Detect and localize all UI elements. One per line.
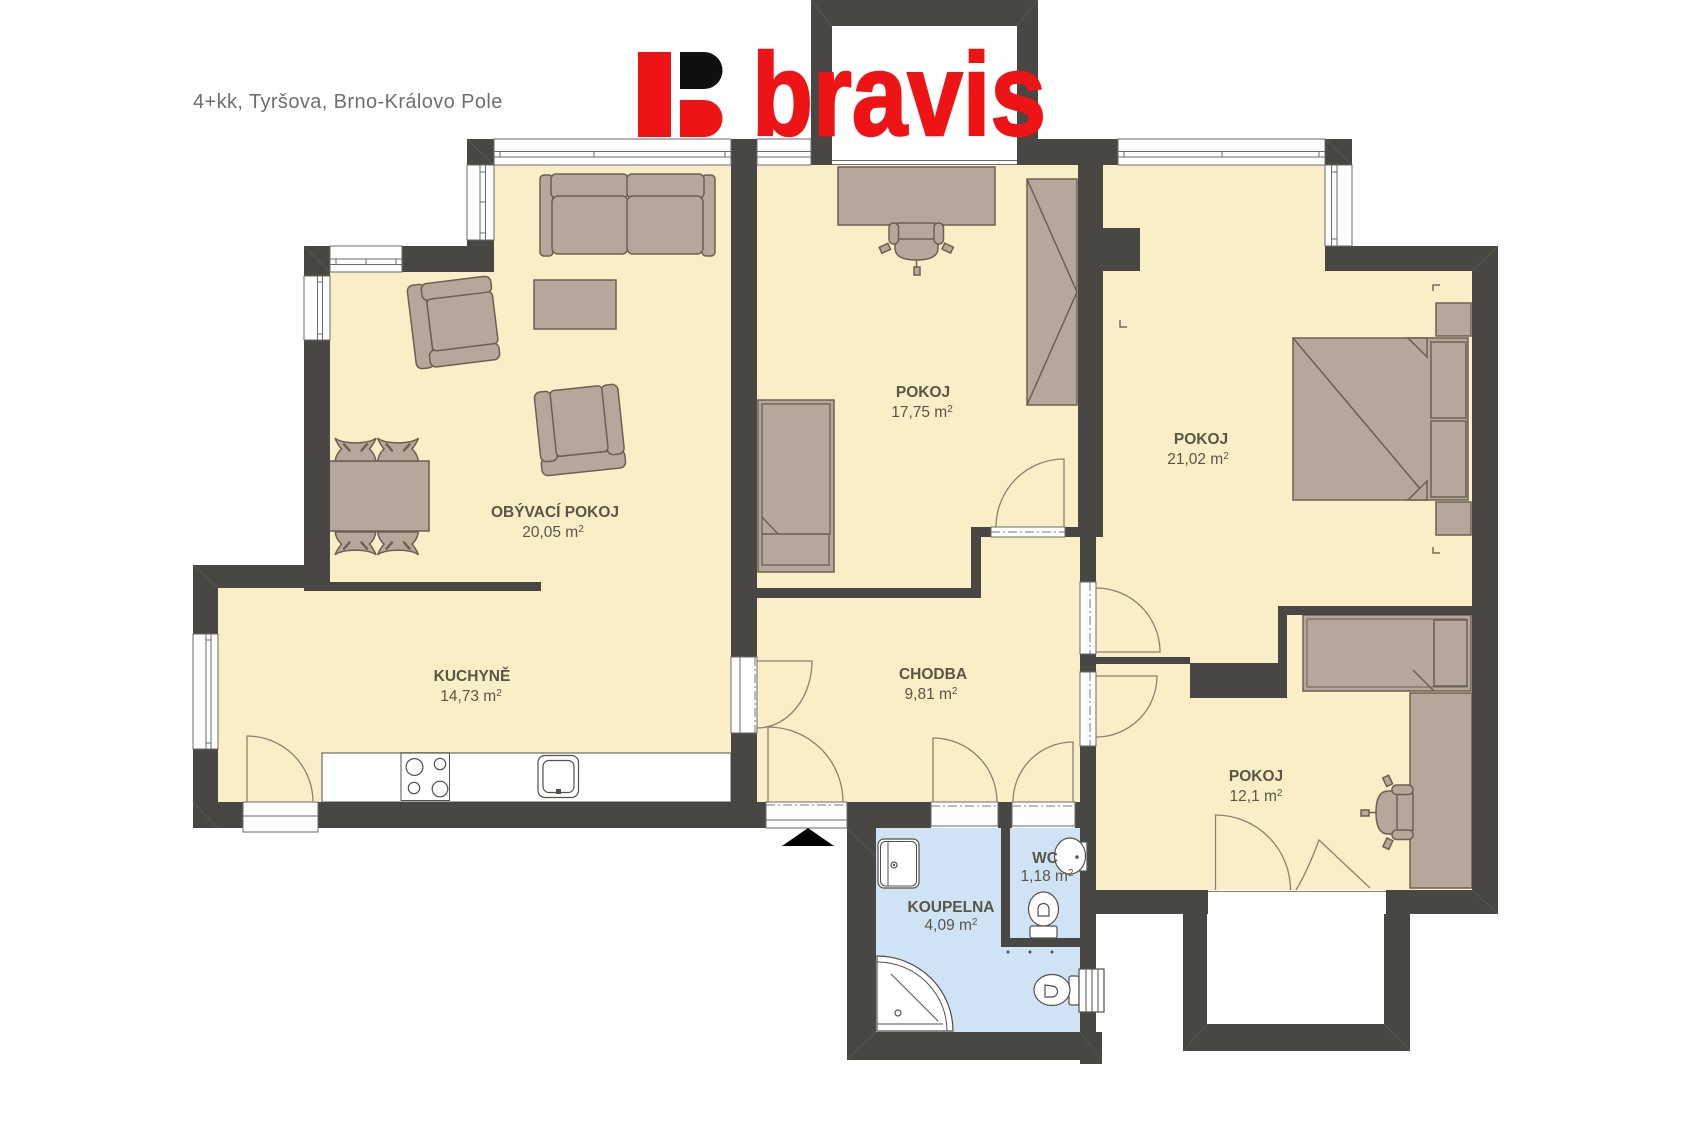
svg-text:4+kk, Tyršova, Brno-Královo Po: 4+kk, Tyršova, Brno-Královo Pole	[193, 91, 503, 113]
svg-text:bravis: bravis	[752, 29, 1046, 160]
svg-text:12,1 m2: 12,1 m2	[1230, 788, 1283, 805]
svg-text:14,73 m2: 14,73 m2	[440, 688, 502, 705]
svg-text:KUCHYNĚ: KUCHYNĚ	[434, 667, 511, 685]
svg-text:17,75 m2: 17,75 m2	[891, 404, 953, 421]
svg-text:1,18 m2: 1,18 m2	[1021, 868, 1074, 885]
svg-text:POKOJ: POKOJ	[1229, 768, 1283, 785]
svg-text:21,02 m2: 21,02 m2	[1167, 451, 1229, 468]
svg-text:WC: WC	[1032, 850, 1058, 867]
svg-text:CHODBA: CHODBA	[899, 666, 967, 683]
svg-text:KOUPELNA: KOUPELNA	[908, 899, 995, 916]
svg-text:4,09 m2: 4,09 m2	[925, 917, 978, 934]
svg-text:20,05 m2: 20,05 m2	[522, 524, 584, 541]
svg-text:9,81 m2: 9,81 m2	[905, 686, 958, 703]
svg-text:OBÝVACÍ POKOJ: OBÝVACÍ POKOJ	[491, 503, 619, 521]
svg-text:POKOJ: POKOJ	[1174, 431, 1228, 448]
svg-text:POKOJ: POKOJ	[896, 384, 950, 401]
